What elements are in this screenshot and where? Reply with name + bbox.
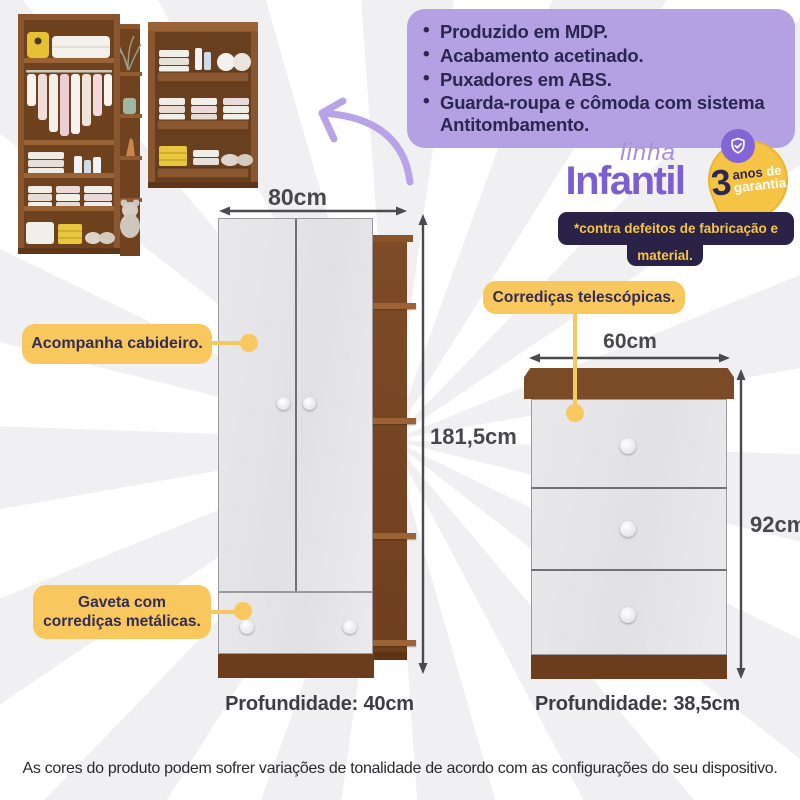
brand-name: Infantil [540,159,710,204]
feature-item: Produzido em MDP. [421,21,783,43]
feature-item: Guarda-roupa e cômoda com sistema Antito… [421,92,783,136]
yellow-crate [58,224,82,244]
wardrobe-height-label: 181,5cm [430,424,517,450]
feature-item: Puxadores em ABS. [421,69,783,91]
warranty-note: *contra defeitos de fabricação e [558,212,794,245]
dresser-drawer-divider [531,569,727,571]
wardrobe-side-shelf-unit [373,235,407,660]
wardrobe-depth-label: Profundidade: 40cm [212,693,427,716]
dresser-open-photo [146,20,260,194]
wardrobe-base [218,654,374,678]
shield-check-icon [721,129,755,163]
curved-arrow-icon [298,92,423,192]
clothes-rod [26,70,112,73]
wardrobe-width-arrow [218,204,408,218]
wardrobe-height-arrow [416,213,430,675]
features-box: Produzido em MDP. Acabamento acetinado. … [407,9,795,148]
towel-stack [28,152,64,174]
wardrobe-door-knob [303,397,316,410]
feature-item: Acabamento acetinado. [421,45,783,67]
drawer-2-items [159,98,249,120]
dresser-drawer-knob [620,438,636,454]
warranty-years: 3 [709,166,732,200]
wardrobe-door-gap [295,219,297,591]
dresser-drawer-knob [620,521,636,537]
wardrobe-drawer-knob [240,620,254,634]
callout-cabideiro-dot [240,334,258,352]
dresser-drawer-divider [531,487,727,489]
callout-telescopicas-line [573,312,577,410]
dresser-width-arrow [528,351,731,365]
callout-gaveta-line [209,610,237,614]
callout-telescopicas: Corrediças telescópicas. [483,281,685,314]
wardrobe-side-bottom-board [373,652,407,660]
callout-cabideiro: Acompanha cabideiro. [22,324,212,364]
teddy-bear [120,200,140,239]
infographic-canvas: Produzido em MDP. Acabamento acetinado. … [0,0,800,800]
wardrobe-open-photo [16,10,142,260]
wardrobe-side-shelf [373,640,416,646]
wardrobe-drawer-knob [343,620,357,634]
warranty-note-tab: material. [627,244,703,266]
features-list: Produzido em MDP. Acabamento acetinado. … [421,21,783,136]
folded-clothes [28,186,112,208]
callout-cabideiro-line [210,341,242,345]
wardrobe-door-knob [277,397,290,410]
dresser-height-label: 92cm [750,512,800,538]
green-vase [123,98,136,114]
dresser-depth-label: Profundidade: 38,5cm [520,693,755,716]
callout-gaveta-dot [234,602,252,620]
wardrobe-side-shelf [373,418,416,424]
wardrobe-side-shelf [373,533,416,539]
warranty-word-garantia: garantia [733,176,787,195]
dresser-base [531,655,727,679]
callout-telescopicas-dot [566,404,584,422]
dresser-top-board [524,368,734,399]
wardrobe-side-top-board [373,235,413,242]
dresser-drawer-knob [620,607,636,623]
color-disclaimer: As cores do produto podem sofrer variaçõ… [0,760,800,778]
yellow-backpack [27,32,49,58]
callout-gaveta: Gaveta com corrediças metálicas. [33,585,211,639]
wardrobe-side-shelf [373,303,416,309]
dresser-height-arrow [734,368,748,680]
white-basket [26,222,54,244]
warranty-badge-content: 3 anos de garantia [709,160,787,200]
